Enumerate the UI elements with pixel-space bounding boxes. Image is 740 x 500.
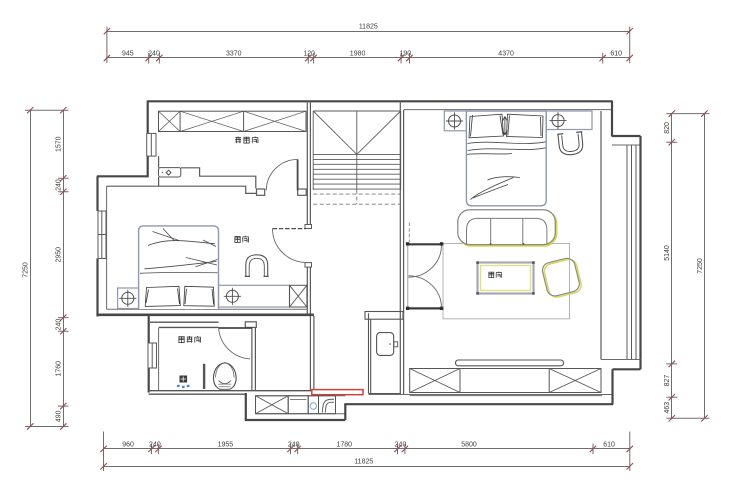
- svg-text:240: 240: [56, 179, 63, 191]
- svg-text:240: 240: [148, 50, 160, 57]
- svg-text:120: 120: [303, 50, 315, 57]
- svg-text:1980: 1980: [350, 50, 366, 57]
- svg-text:610: 610: [610, 50, 622, 57]
- svg-text:3370: 3370: [226, 50, 242, 57]
- svg-text:1780: 1780: [337, 441, 353, 448]
- svg-text:7250: 7250: [697, 258, 704, 274]
- svg-text:240: 240: [56, 319, 63, 331]
- svg-text:1570: 1570: [56, 136, 63, 152]
- svg-text:5800: 5800: [461, 441, 477, 448]
- svg-text:490: 490: [56, 410, 63, 422]
- svg-text:610: 610: [603, 441, 615, 448]
- svg-text:11825: 11825: [359, 24, 378, 31]
- svg-text:827: 827: [664, 375, 671, 387]
- svg-text:4370: 4370: [498, 50, 514, 57]
- svg-text:1760: 1760: [56, 361, 63, 377]
- svg-text:240: 240: [149, 441, 161, 448]
- svg-text:190: 190: [399, 50, 411, 57]
- svg-text:5140: 5140: [664, 245, 671, 261]
- svg-text:240: 240: [395, 441, 407, 448]
- svg-text:2950: 2950: [56, 247, 63, 263]
- svg-text:240: 240: [288, 441, 300, 448]
- svg-text:945: 945: [122, 50, 134, 57]
- svg-text:11825: 11825: [354, 459, 373, 466]
- svg-text:960: 960: [122, 441, 134, 448]
- svg-text:820: 820: [664, 122, 671, 134]
- svg-text:7250: 7250: [23, 262, 30, 278]
- svg-text:463: 463: [664, 402, 671, 414]
- svg-text:1955: 1955: [218, 441, 234, 448]
